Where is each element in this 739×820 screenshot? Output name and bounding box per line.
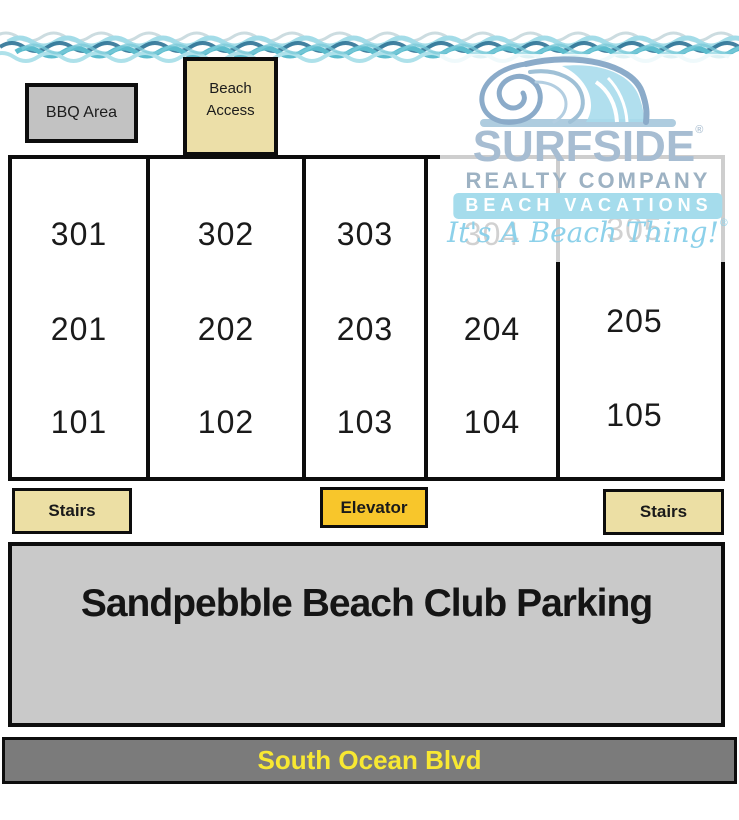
stairs-left-box: Stairs xyxy=(12,488,132,534)
unit-number: 101 xyxy=(12,404,146,441)
site-map: BBQ Area Beach Access 301 201 101 302 20… xyxy=(0,0,739,820)
unit-number: 105 xyxy=(560,397,709,434)
unit-number: 303 xyxy=(306,216,424,253)
parking-area: Sandpebble Beach Club Parking xyxy=(8,542,725,727)
registered-mark: ® xyxy=(695,124,703,136)
unit-number: 103 xyxy=(306,404,424,441)
registered-mark: ® xyxy=(719,218,729,229)
unit-number: 102 xyxy=(150,404,302,441)
building-column-3: 303 203 103 xyxy=(306,159,428,477)
unit-number: 301 xyxy=(12,216,146,253)
building-column-2: 302 202 102 xyxy=(150,159,306,477)
stairs-right-label: Stairs xyxy=(640,502,687,522)
unit-number: 204 xyxy=(428,311,556,348)
street-label: South Ocean Blvd xyxy=(258,745,482,776)
logo-subtitle: REALTY COMPANY xyxy=(440,168,736,194)
bbq-area-label: BBQ Area xyxy=(46,104,117,122)
unit-number: 302 xyxy=(150,216,302,253)
elevator-label: Elevator xyxy=(340,498,407,518)
street-bar: South Ocean Blvd xyxy=(2,737,737,784)
building-column-1: 301 201 101 xyxy=(12,159,150,477)
logo-tagline: It's A Beach Thing!® xyxy=(440,216,736,249)
beach-access-label: Beach Access xyxy=(200,78,262,122)
surfside-logo: SURFSIDE® REALTY COMPANY BEACH VACATIONS… xyxy=(440,54,736,262)
stairs-right-box: Stairs xyxy=(603,489,724,535)
parking-label: Sandpebble Beach Club Parking xyxy=(81,582,652,723)
unit-number: 203 xyxy=(306,311,424,348)
beach-access-box: Beach Access xyxy=(183,57,278,156)
bbq-area-box: BBQ Area xyxy=(25,83,138,143)
wave-swirl-icon xyxy=(466,56,688,130)
unit-number: 202 xyxy=(150,311,302,348)
elevator-box: Elevator xyxy=(320,487,428,528)
unit-number: 205 xyxy=(560,303,709,340)
unit-number: 201 xyxy=(12,311,146,348)
unit-number: 104 xyxy=(428,404,556,441)
stairs-left-label: Stairs xyxy=(48,501,95,521)
logo-name: SURFSIDE® xyxy=(440,122,736,172)
